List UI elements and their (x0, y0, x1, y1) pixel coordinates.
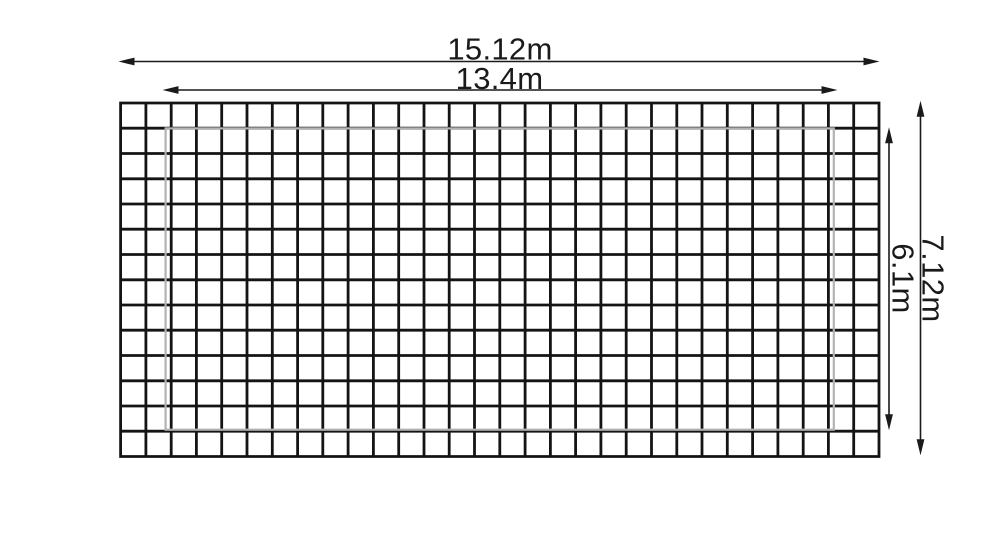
svg-text:7.12m: 7.12m (915, 234, 950, 322)
svg-text:6.1m: 6.1m (885, 243, 920, 314)
svg-text:13.4m: 13.4m (456, 61, 544, 96)
